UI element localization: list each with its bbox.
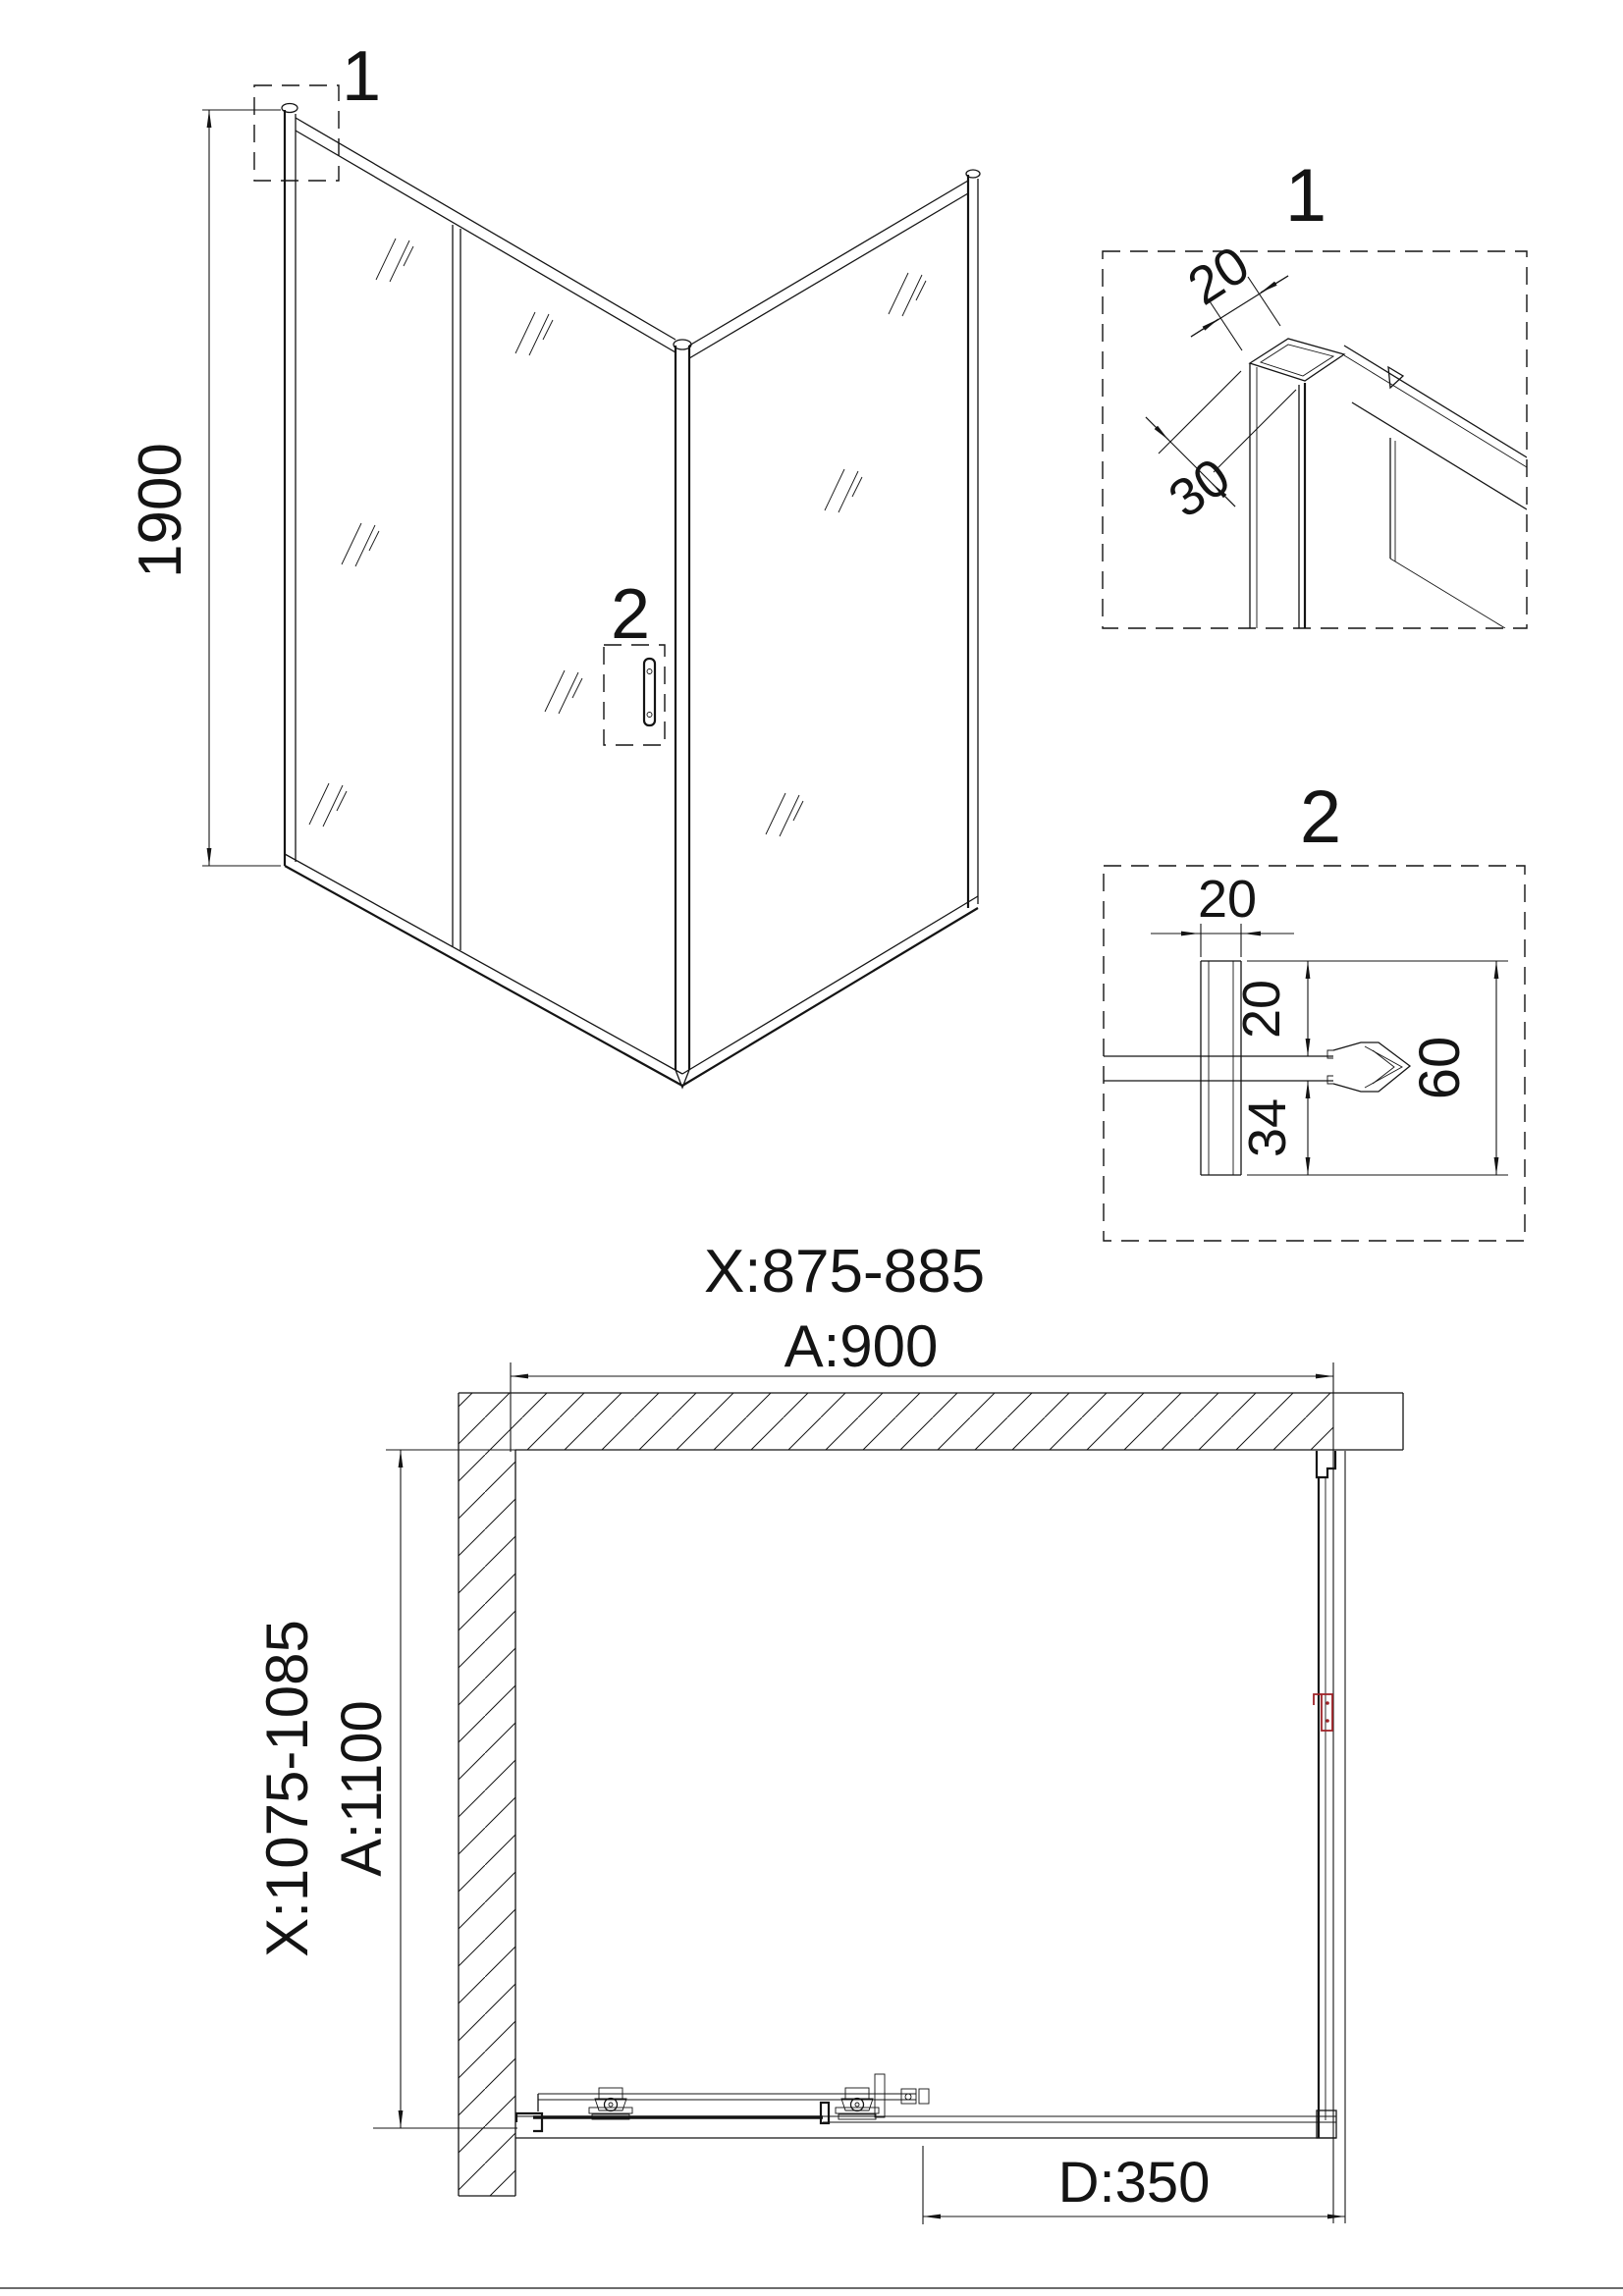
iso-door-divider [453,225,460,950]
top-rail-receding [1344,346,1527,628]
detail-2-dim-60: 60 [1408,961,1496,1175]
magnet-seal-section [1327,1042,1410,1092]
red-clip-marker [1314,1694,1332,1731]
plan-view: X:875-885 A:900 X:1075-1085 A:1100 [254,1238,1403,2224]
detail-2-dim-34: 34 [1238,1081,1308,1175]
callout-box-1 [254,85,339,181]
iso-top-rails [296,118,968,358]
detail-2: 2 20 [1104,775,1525,1241]
dim-height-label: 1900 [127,443,194,578]
iso-left-post [282,104,298,867]
depth-adjust-range-label: X:1075-1085 [254,1620,320,1957]
width-nominal-label: A:900 [784,1313,939,1379]
door-edge-profile [821,2103,829,2123]
sliding-door-assembly [515,2074,1336,2138]
detail-1-label: 1 [1285,154,1326,238]
wall-top [459,1393,1403,1450]
iso-view: 1 2 1900 [127,37,980,1088]
detail-2-dim-20-top-label: 20 [1198,870,1257,929]
drawing-sheet: 1 2 1900 1 [0,0,1623,2296]
width-adjust-range-label: X:875-885 [704,1238,985,1306]
wall-left [459,1393,515,2196]
detail-1: 1 [1103,154,1527,628]
callout-label-2: 2 [611,575,650,654]
detail-2-dim-34-label: 34 [1238,1098,1297,1157]
detail-1-box [1103,251,1527,628]
iso-right-post [966,170,980,908]
corner-profile-tube [1250,339,1344,628]
detail-2-label: 2 [1300,775,1341,859]
callout-label-1: 1 [342,37,381,116]
door-handle [644,659,655,725]
depth-nominal-label: A:1100 [330,1700,394,1877]
iso-bottom-rails [285,854,978,1086]
dim-door-opening: D:350 [923,2146,1345,2224]
detail-1-dim-20-label: 20 [1178,235,1260,316]
dim-height-1900: 1900 [127,110,281,866]
detail-2-dim-20-top: 20 [1151,870,1294,957]
detail-1-dim-30-label: 30 [1159,447,1241,529]
detail-2-dim-20-inner: 20 [1232,961,1308,1056]
detail-2-dim-20-inner-label: 20 [1232,980,1291,1039]
side-panel-right [1317,1362,1345,2223]
detail-2-dim-60-label: 60 [1408,1037,1472,1100]
iso-corner-post [674,340,691,1088]
technical-drawing-canvas: 1 2 1900 1 [0,0,1623,2296]
glass-section [1104,1056,1333,1081]
door-opening-label: D:350 [1058,2151,1211,2215]
